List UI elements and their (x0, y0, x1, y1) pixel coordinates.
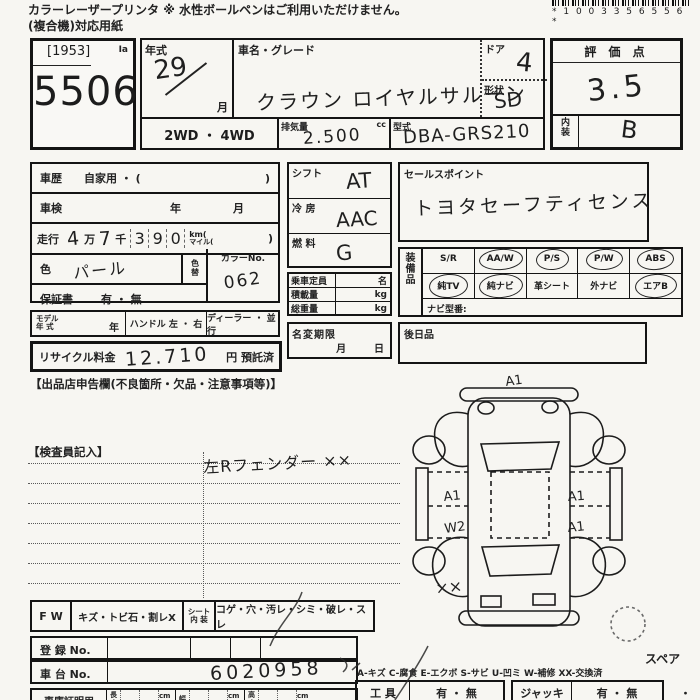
barcode-bars (552, 0, 692, 6)
equip-navi: 純ナビ (475, 274, 527, 298)
jack-label: ジャッキ (513, 682, 572, 700)
mileage-man: 4 (66, 227, 80, 250)
equipment-row1: S/R AA/W P/S P/W ABS (423, 249, 681, 274)
lot-number: 5506 (33, 69, 133, 115)
fuel-label: 燃 料 (292, 235, 315, 250)
inspector-line (28, 523, 400, 524)
door-value: 4 (515, 47, 535, 79)
capacity-label: 乗車定員 (289, 274, 336, 287)
lot-box: [1953] Ia 5506 (30, 38, 136, 150)
garage-cert-label: 車庫証明用 (32, 690, 107, 700)
ac-cell: 冷 房 AAC (289, 199, 390, 234)
inspector-line (28, 563, 400, 564)
pen-stroke (270, 592, 302, 646)
mileage-label: 走行 (37, 231, 59, 247)
chassis-divider (107, 662, 108, 682)
name-cell: 車名・グレード クラウン ロイヤルサルーン (234, 40, 480, 117)
inspector-section-label: 【検査員記入】 (28, 444, 109, 460)
inspector-line (28, 503, 400, 504)
registration-divider (107, 638, 108, 658)
length-cell (139, 690, 158, 700)
length-cell (120, 690, 139, 700)
shift-value: AT (346, 168, 373, 194)
mark-left-front: A1 (443, 488, 462, 505)
warranty-row: 保証書 有 ・ 無 (32, 285, 207, 313)
shaken-label: 車検 (40, 200, 62, 216)
width-label: 幅 (175, 690, 189, 700)
width-cell (189, 690, 208, 700)
history-table: 車歴 自家用 ・ ( ) 車検 年 月 走行 4 万 7 千 3 9 0 km(… (30, 162, 280, 303)
left-taillight (481, 596, 501, 607)
equip-aftermarket-navi: 外ナビ (578, 274, 630, 298)
jack-box: ジャッキ 有 ・ 無 (511, 680, 664, 700)
roof-outline (491, 472, 549, 538)
equip-abs: ABS (630, 249, 681, 273)
pen-stroke (395, 646, 428, 700)
pen-stroke (352, 663, 360, 670)
mark-right-rear: A1 (567, 519, 586, 536)
equip-power-steering: P/S (527, 249, 579, 273)
recycle-fee-suffix: 円 預託済 (226, 349, 274, 365)
rename-deadline-box: 名変期限 月 日 (287, 322, 392, 359)
color-label: 色 (40, 261, 51, 277)
printer-note: カラーレーザープリンタ ※ 水性ボールペンはご利用いただけません。 (複合機)対… (28, 3, 407, 34)
lot-mark: Ia (119, 45, 128, 55)
car-history-row: 車歴 自家用 ・ ( ) (32, 164, 278, 194)
left-headlight (478, 402, 494, 414)
door-shape-divider (482, 79, 547, 81)
seller-declaration-label: 【出品店申告欄(不良箇所・欠品・注意事項等)】 (30, 376, 282, 392)
printer-note-line1: カラーレーザープリンタ ※ 水性ボールペンはご利用いただけません。 (28, 3, 407, 19)
windshield (481, 442, 559, 471)
left-rocker-panel (416, 468, 428, 540)
shift-cell: シフト AT (289, 164, 390, 199)
right-rear-wheel (593, 547, 625, 575)
load-label: 積載量 (289, 288, 336, 301)
mileage-sen: 7 (98, 227, 112, 250)
rear-window (482, 545, 559, 576)
info-bottom-row: 2WD ・ 4WD 排気量 cc 2.500 型式 DBA-GRS210 (142, 117, 543, 149)
registration-divider (190, 638, 191, 658)
displacement-unit: cc (377, 120, 386, 129)
left-front-wheel (413, 436, 445, 464)
barcode-digits: * 1 0 0 3 3 5 6 5 5 6 * (552, 7, 692, 27)
capacity-unit: 名 (378, 274, 387, 287)
width-cell (208, 690, 227, 700)
ac-label: 冷 房 (292, 200, 315, 215)
recycle-fee-box: リサイクル料金 12.710 円 預託済 (30, 341, 282, 372)
fuel-value: G (335, 240, 353, 265)
mark-right-front: A1 (567, 489, 585, 505)
color-change-label: 色 替 (181, 255, 207, 283)
shift-ac-fuel-box: シフト AT 冷 房 AAC 燃 料 G (287, 162, 392, 268)
inspector-line (28, 543, 400, 544)
seat-interior-label: シート 内 装 (184, 602, 216, 630)
navi-model-label: ナビ型番: (423, 299, 681, 319)
rating-score: 3.5 (585, 68, 648, 109)
drive-type: 2WD ・ 4WD (142, 119, 279, 149)
lot-bracket: [1953] (47, 44, 90, 59)
color-row: 色 パール 色 替 (32, 255, 207, 285)
shaken-year-unit: 年 (170, 200, 181, 216)
stray-pen-strokes (240, 588, 460, 700)
left-rear-wheel (413, 547, 445, 575)
barcode: * 1 0 0 3 3 5 6 5 5 6 * (552, 0, 692, 27)
shift-label: シフト (292, 165, 322, 180)
inspector-line (28, 483, 400, 484)
handle-cell: ハンドル 左 ・ 右 (126, 312, 207, 335)
sales-point-label: セールスポイント (404, 166, 484, 181)
inspector-line (28, 583, 400, 584)
interior-row: 内 装 B (553, 114, 680, 147)
mark-left-rear: W2 (443, 519, 466, 537)
color-no-label: カラーNo. (208, 249, 278, 264)
rename-label: 名変期限 (292, 326, 336, 341)
year-cell: 年式 29 月 (142, 40, 234, 117)
later-items-box: 後日品 (398, 322, 647, 364)
equipment-side-label: 装 備 品 (400, 249, 423, 315)
door-label: ドア (485, 41, 505, 56)
weight-row: 総重量 kg (289, 302, 390, 315)
spare-label: スペア (645, 652, 680, 666)
equip-power-windows: P/W (578, 249, 630, 273)
rating-box: 評 価 点 3.5 内 装 B (550, 38, 683, 150)
dealer-cell: ディーラー ・ 並行 (207, 312, 278, 335)
model-year-unit: 年 (109, 319, 119, 334)
mileage-mile-label: マイル( (189, 239, 213, 246)
displacement-cell: 排気量 cc 2.500 (279, 119, 391, 149)
right-taillight (533, 594, 555, 605)
mileage-sen-unit: 千 (115, 231, 126, 247)
mileage-km-stack: km( マイル( (189, 231, 213, 246)
fuel-cell: 燃 料 G (289, 234, 390, 268)
displacement-value: 2.500 (302, 125, 362, 149)
later-items-label: 後日品 (404, 326, 434, 341)
registration-divider (230, 638, 231, 658)
equipment-row2: 純TV 純ナビ 革シート 外ナビ エアB (423, 274, 681, 299)
chassis-label: 車 台 No. (40, 666, 91, 682)
car-body (468, 398, 570, 626)
equip-airbag: エアB (630, 274, 681, 298)
warranty-value: 有 ・ 無 (101, 291, 142, 307)
equip-sunroof: S/R (423, 249, 475, 273)
mileage-close: ) (268, 232, 273, 245)
recycle-fee-value: 12.710 (125, 343, 211, 371)
mileage-digit-1: 3 (130, 229, 148, 248)
printer-note-line2: (複合機)対応用紙 (28, 19, 407, 35)
weight-label: 総重量 (289, 302, 336, 315)
length-label: 長 さ (107, 690, 120, 700)
color-no-value: 062 (207, 266, 279, 296)
sales-point-box: セールスポイント トヨタセーフティセンス (398, 162, 649, 242)
sales-point-value: トヨタセーフティセンス (414, 186, 654, 221)
color-no-box: カラーNo. 062 (206, 249, 278, 302)
trailing-dot: ・ (680, 685, 691, 700)
equip-alloy-wheels: AA/W (475, 249, 527, 273)
equip-leather-seat: 革シート (527, 274, 579, 298)
vehicle-info-box: 年式 29 月 車名・グレード クラウン ロイヤルサルーン ドア 4 形状 SD… (140, 38, 545, 150)
mileage-man-unit: 万 (84, 231, 95, 247)
equip-tv: 純TV (423, 274, 475, 298)
rear-bumper (459, 611, 579, 625)
rename-units: 月 日 (336, 340, 384, 355)
month-label: 月 (217, 99, 228, 115)
color-value: パール (72, 254, 128, 284)
equipment-box: 装 備 品 S/R AA/W P/S P/W ABS 純TV 純ナビ 革シート … (398, 247, 683, 317)
name-label: 車名・グレード (238, 42, 315, 58)
registration-label: 登 録 No. (40, 642, 91, 658)
right-rocker-panel (610, 468, 622, 540)
mileage-digit-2: 9 (148, 229, 166, 248)
interior-label: 内 装 (553, 116, 579, 147)
model-year-label: モデル 年 式 (36, 315, 59, 332)
auction-sheet: カラーレーザープリンタ ※ 水性ボールペンはご利用いただけません。 (複合機)対… (0, 0, 700, 700)
rating-title: 評 価 点 (553, 41, 680, 63)
model-code-cell: 型式 DBA-GRS210 (391, 119, 543, 149)
pen-stroke (340, 658, 347, 672)
spare-tire-circle (611, 607, 645, 641)
right-front-wheel (593, 436, 625, 464)
equipment-grid: S/R AA/W P/S P/W ABS 純TV 純ナビ 革シート 外ナビ エア… (423, 249, 681, 315)
door-shape-cell: ドア 4 形状 SD (480, 40, 547, 117)
capacity-table: 乗車定員 名 積載量 kg 総重量 kg (287, 272, 392, 316)
length-cm: cm (158, 690, 175, 700)
mark-front: A1 (504, 373, 523, 390)
model-year-row: モデル 年 式 年 ハンドル 左 ・ 右 ディーラー ・ 並行 (30, 310, 280, 337)
shape-value: SD (493, 87, 523, 114)
lot-underline (33, 65, 91, 66)
interior-grade-wrap: B (579, 116, 680, 147)
shaken-row: 車検 年 月 (32, 194, 278, 224)
jack-value: 有 ・ 無 (572, 682, 662, 700)
inspector-note: 左Rフェンダー ×× (202, 446, 352, 478)
model-code-value: DBA-GRS210 (403, 121, 531, 149)
load-row: 積載量 kg (289, 288, 390, 302)
warranty-label: 保証書 (40, 291, 73, 307)
fw-condition: キズ・トビ石・割レX (72, 602, 184, 630)
weight-unit: kg (375, 304, 387, 314)
load-unit: kg (375, 290, 387, 300)
right-headlight (542, 401, 558, 413)
model-year-cell: モデル 年 式 年 (32, 312, 126, 335)
capacity-row: 乗車定員 名 (289, 274, 390, 288)
car-history-value: 自家用 ・ ( (84, 170, 141, 186)
right-rear-door (570, 537, 605, 596)
interior-grade: B (620, 115, 640, 145)
recycle-fee-label: リサイクル料金 (39, 349, 115, 365)
ac-value: AAC (336, 206, 379, 232)
shaken-month-unit: 月 (233, 200, 244, 216)
car-history-label: 車歴 (40, 170, 62, 186)
fw-label: F W (32, 602, 72, 630)
mileage-digit-3: 0 (166, 229, 185, 248)
car-history-close: ) (265, 172, 270, 185)
